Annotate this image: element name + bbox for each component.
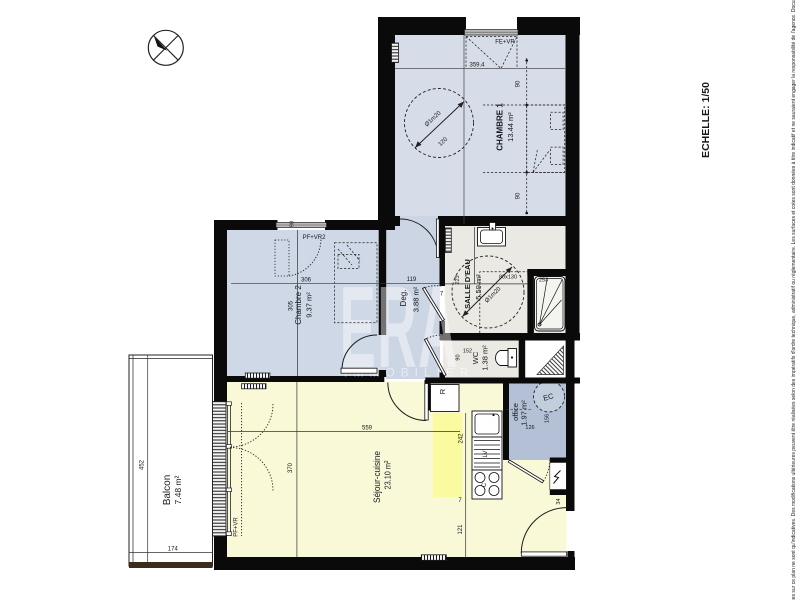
svg-text:PF+VR2: PF+VR2	[303, 235, 327, 241]
svg-text:23.10 m²: 23.10 m²	[383, 460, 393, 489]
svg-text:90: 90	[516, 80, 522, 87]
svg-text:90: 90	[290, 221, 296, 227]
svg-text:119: 119	[407, 277, 417, 283]
svg-text:1.97 m²: 1.97 m²	[520, 400, 529, 426]
svg-text:R: R	[438, 388, 447, 394]
svg-text:5.59 m²: 5.59 m²	[474, 274, 483, 300]
svg-text:121: 121	[458, 524, 464, 535]
svg-text:Séjour-cuisine: Séjour-cuisine	[372, 451, 383, 503]
svg-text:13.44 m²: 13.44 m²	[506, 112, 515, 142]
svg-text:Chambre 2: Chambre 2	[294, 285, 303, 325]
svg-text:306: 306	[301, 278, 312, 284]
svg-text:Deg.: Deg.	[399, 290, 408, 307]
svg-text:LV: LV	[483, 451, 489, 458]
svg-text:126: 126	[525, 425, 534, 431]
svg-text:156: 156	[545, 414, 551, 423]
svg-text:1.38 m²: 1.38 m²	[481, 345, 490, 371]
svg-text:152: 152	[463, 349, 472, 355]
svg-text:90: 90	[456, 354, 462, 360]
svg-text:CHAMBRE 1: CHAMBRE 1	[496, 103, 505, 151]
svg-text:559: 559	[362, 426, 373, 432]
svg-text:90: 90	[516, 192, 522, 199]
svg-text:PF+VR: PF+VR	[234, 517, 240, 537]
svg-text:WC: WC	[471, 351, 480, 364]
svg-text:9.37 m²: 9.37 m²	[305, 292, 314, 318]
svg-text:FE+VR: FE+VR	[495, 40, 515, 46]
svg-text:174: 174	[168, 547, 179, 553]
svg-text:ECHELLE: 1/50: ECHELLE: 1/50	[700, 82, 712, 158]
svg-text:3.88 m²: 3.88 m²	[412, 286, 421, 312]
svg-text:34: 34	[556, 498, 562, 504]
svg-text:Balcon: Balcon	[162, 475, 173, 506]
svg-text:253: 253	[539, 278, 548, 284]
svg-text:452: 452	[140, 459, 146, 470]
svg-text:370: 370	[288, 462, 294, 473]
svg-text:7.48 m²: 7.48 m²	[173, 475, 183, 504]
svg-text:C: C	[482, 482, 488, 487]
svg-text:80x130: 80x130	[499, 275, 517, 281]
svg-text:223: 223	[455, 275, 461, 284]
svg-text:359.4: 359.4	[469, 63, 485, 69]
svg-text:242: 242	[459, 433, 465, 444]
svg-text:Les indications données sur ce: Les indications données sur ce plan ne s…	[791, 0, 797, 600]
svg-text:SALLE D'EAU: SALLE D'EAU	[463, 259, 472, 309]
